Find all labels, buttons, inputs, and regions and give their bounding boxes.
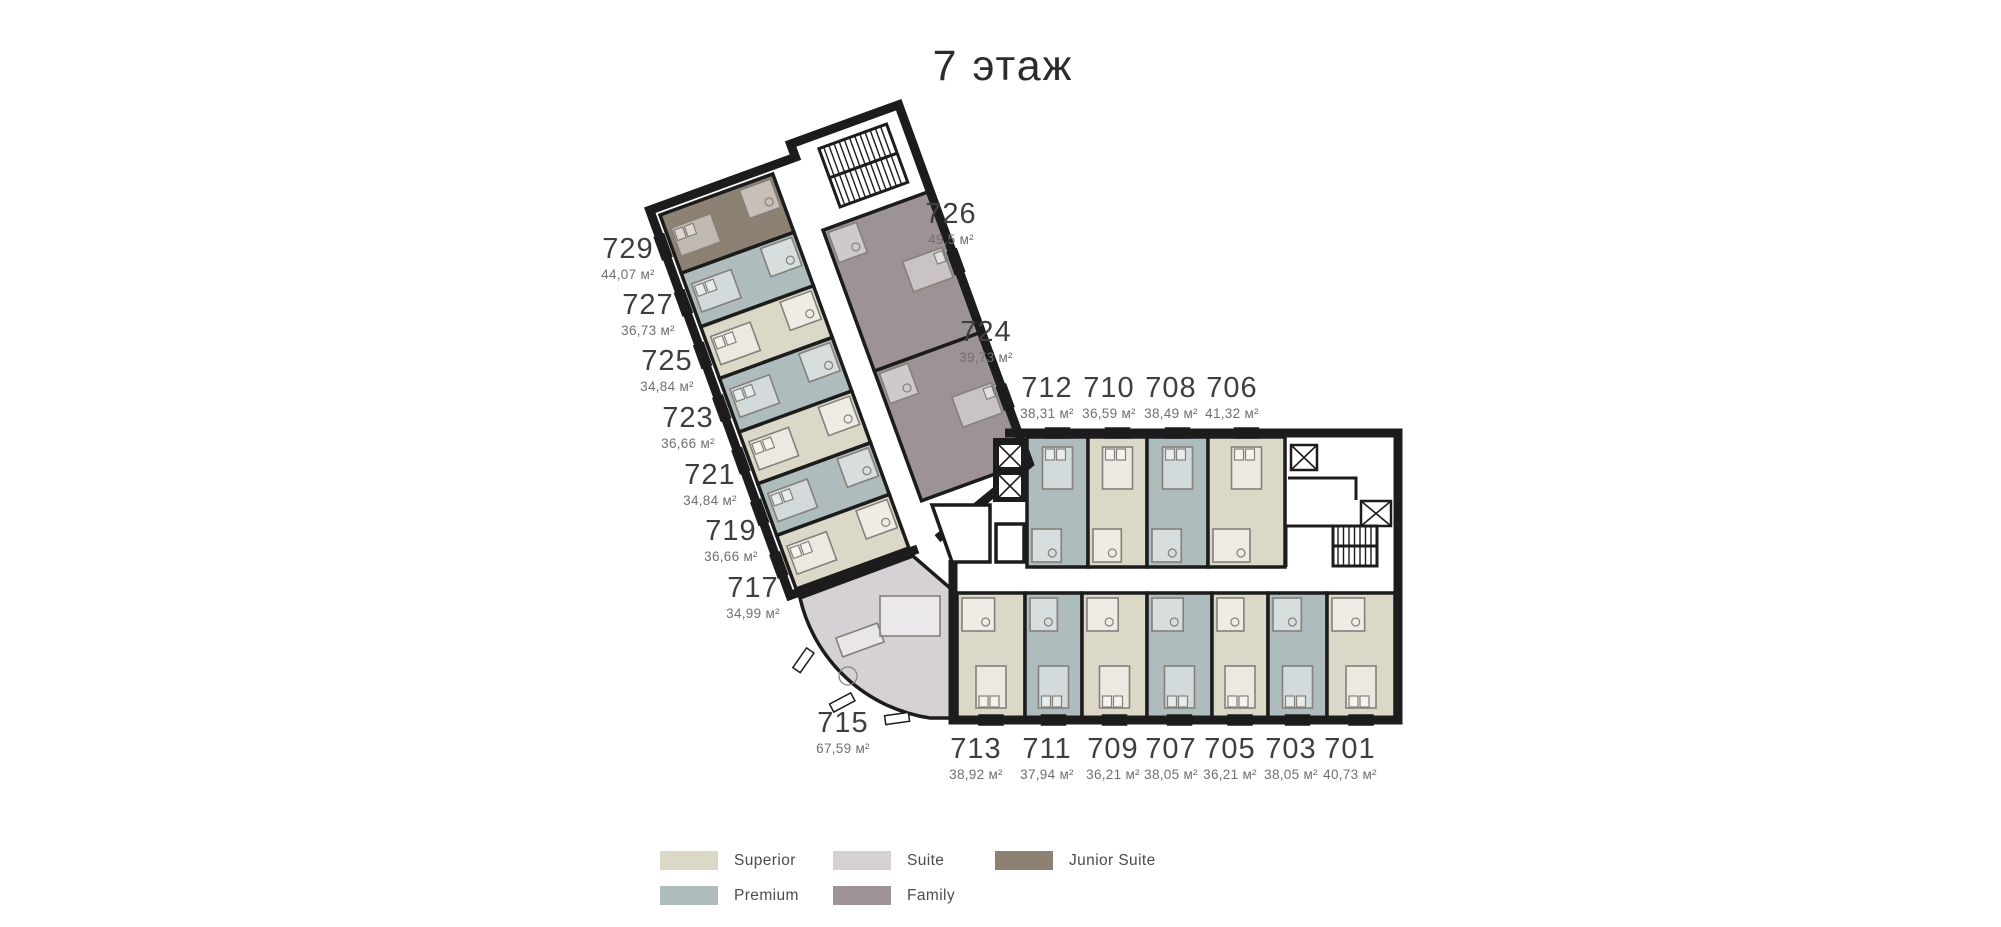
room-713[interactable] [957,593,1025,725]
room-707[interactable] [1147,593,1212,725]
room-label-724[interactable]: 72439,73 м² [959,317,1013,365]
room-area: 44,07 м² [601,267,655,282]
room-label-723[interactable]: 72336,66 м² [661,403,715,451]
room-label-721[interactable]: 72134,84 м² [683,460,737,508]
room-area: 37,94 м² [1020,767,1074,782]
room-area: 36,59 м² [1082,406,1136,421]
room-label-703[interactable]: 70338,05 м² [1264,734,1318,782]
room-label-711[interactable]: 71137,94 м² [1020,734,1074,782]
legend-label: Junior Suite [1069,852,1156,870]
room-area: 39,73 м² [959,350,1013,365]
room-number: 703 [1264,734,1318,764]
room-number: 713 [949,734,1003,764]
room-705[interactable] [1212,593,1268,725]
legend-item-superior: Superior [660,851,796,870]
room-label-726[interactable]: 72649,5 м² [925,199,976,247]
legend-swatch-premium [660,886,718,905]
room-label-713[interactable]: 71338,92 м² [949,734,1003,782]
room-708[interactable] [1147,428,1208,567]
legend-swatch-family [833,886,891,905]
floorplan-canvas [0,0,2001,927]
room-number: 701 [1323,734,1377,764]
elevator-icon [1291,445,1317,470]
legend-swatch-suite [833,851,891,870]
room-area: 41,32 м² [1205,406,1259,421]
elevator-icon [998,444,1022,468]
floorplan-page: 7 этаж [0,0,2001,927]
room-number: 726 [925,199,976,229]
legend-label: Suite [907,852,944,870]
room-703[interactable] [1268,593,1327,725]
room-area: 49,5 м² [925,232,976,247]
room-number: 724 [959,317,1013,347]
room-number: 723 [661,403,715,433]
legend-swatch-superior [660,851,718,870]
room-number: 706 [1205,373,1259,403]
room-label-715[interactable]: 71567,59 м² [816,708,870,756]
room-label-729[interactable]: 72944,07 м² [601,234,655,282]
stairs-icon [1333,526,1377,566]
room-number: 725 [640,346,694,376]
room-area: 38,05 м² [1264,767,1318,782]
elevator-icon [998,474,1022,498]
room-number: 711 [1020,734,1074,764]
room-number: 707 [1144,734,1198,764]
room-area: 36,66 м² [704,549,758,564]
room-number: 709 [1086,734,1140,764]
room-number: 715 [816,708,870,738]
room-label-708[interactable]: 70838,49 м² [1144,373,1198,421]
room-label-727[interactable]: 72736,73 м² [621,290,675,338]
room-number: 719 [704,516,758,546]
room-701[interactable] [1327,593,1395,725]
room-number: 712 [1020,373,1074,403]
room-area: 38,92 м² [949,767,1003,782]
elevator-icon [1361,501,1391,526]
room-706[interactable] [1208,428,1285,567]
room-area: 67,59 м² [816,741,870,756]
room-area: 34,84 м² [640,379,694,394]
room-area: 36,73 м² [621,323,675,338]
legend-label: Family [907,887,955,905]
room-area: 34,99 м² [726,606,780,621]
room-number: 721 [683,460,737,490]
room-label-709[interactable]: 70936,21 м² [1086,734,1140,782]
legend-item-junior_suite: Junior Suite [995,851,1156,870]
legend-label: Premium [734,887,799,905]
room-area: 36,66 м² [661,436,715,451]
room-label-707[interactable]: 70738,05 м² [1144,734,1198,782]
room-label-710[interactable]: 71036,59 м² [1082,373,1136,421]
room-area: 38,05 м² [1144,767,1198,782]
room-label-719[interactable]: 71936,66 м² [704,516,758,564]
room-709[interactable] [1082,593,1147,725]
room-label-725[interactable]: 72534,84 м² [640,346,694,394]
room-711[interactable] [1025,593,1082,725]
legend-item-premium: Premium [660,886,799,905]
room-area: 36,21 м² [1203,767,1257,782]
legend-label: Superior [734,852,796,870]
legend-item-family: Family [833,886,955,905]
room-number: 717 [726,573,780,603]
room-number: 705 [1203,734,1257,764]
service-room [996,524,1024,562]
room-number: 710 [1082,373,1136,403]
room-710[interactable] [1088,428,1147,567]
room-area: 38,31 м² [1020,406,1074,421]
room-area: 36,21 м² [1086,767,1140,782]
room-area: 40,73 м² [1323,767,1377,782]
room-712[interactable] [1027,428,1088,567]
room-label-706[interactable]: 70641,32 м² [1205,373,1259,421]
service-room [932,505,990,562]
room-label-717[interactable]: 71734,99 м² [726,573,780,621]
room-label-705[interactable]: 70536,21 м² [1203,734,1257,782]
room-number: 729 [601,234,655,264]
room-label-712[interactable]: 71238,31 м² [1020,373,1074,421]
room-area: 38,49 м² [1144,406,1198,421]
legend-swatch-junior_suite [995,851,1053,870]
room-area: 34,84 м² [683,493,737,508]
room-number: 708 [1144,373,1198,403]
room-label-701[interactable]: 70140,73 м² [1323,734,1377,782]
room-number: 727 [621,290,675,320]
legend-item-suite: Suite [833,851,944,870]
